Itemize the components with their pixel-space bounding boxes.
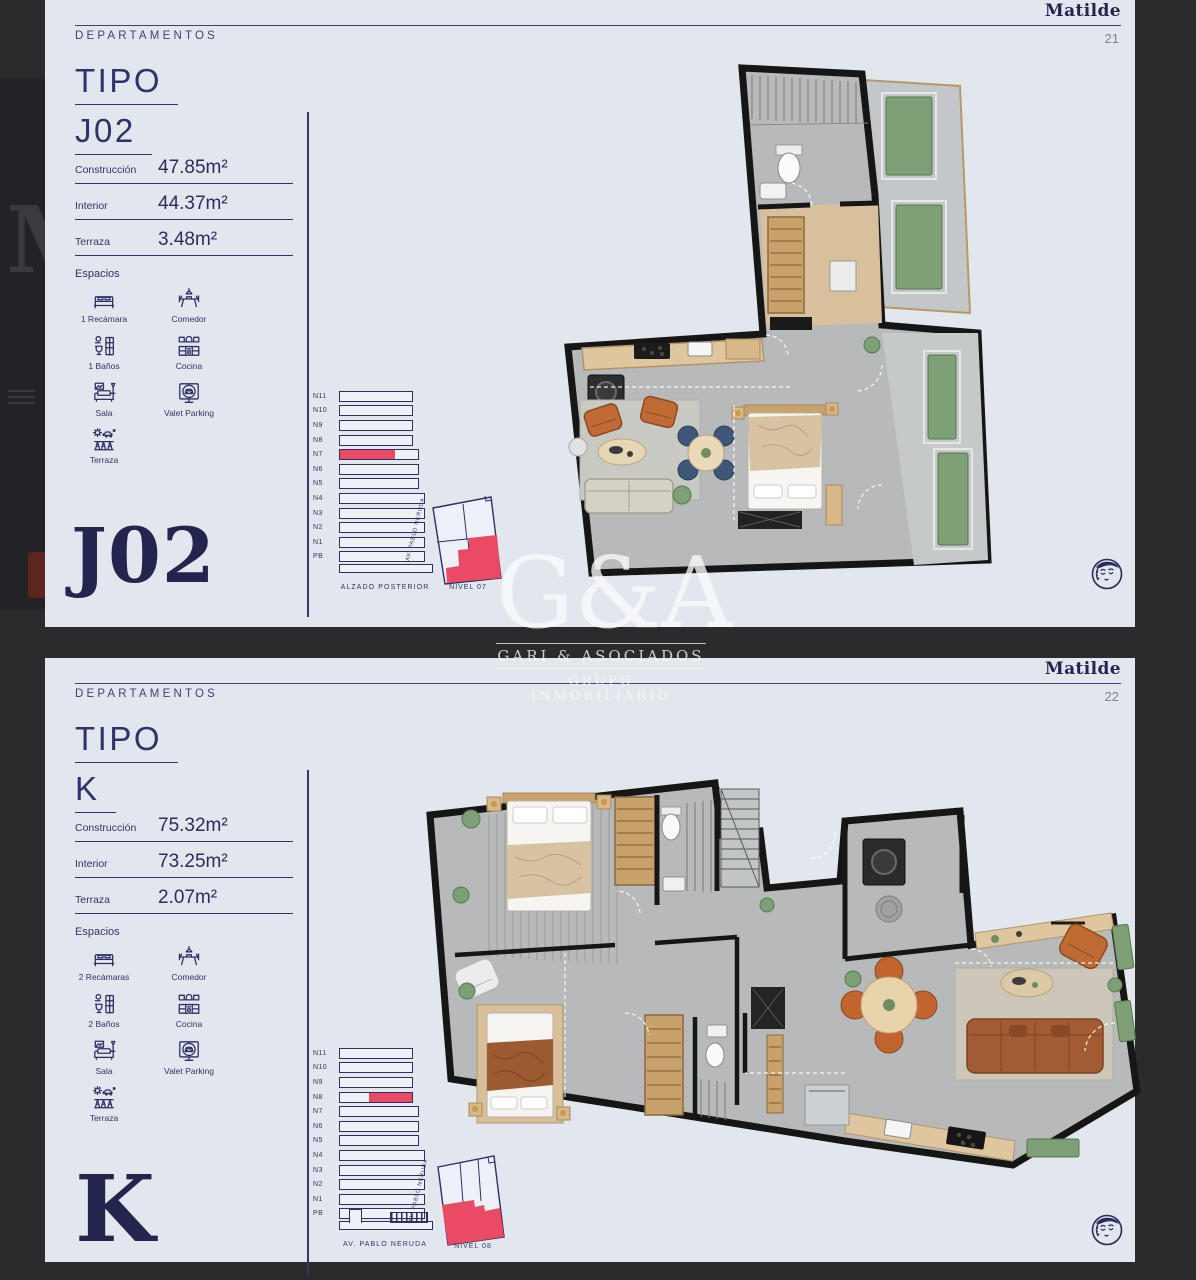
espacio-label: Comedor (137, 972, 241, 982)
floor-bar (339, 435, 413, 446)
metric-label: Terraza (75, 236, 110, 248)
brand-wordmark: Matilde (1045, 1, 1121, 21)
metric-row: Construcción 47.85m² (75, 148, 293, 184)
brochure-page-22: Matilde 22 DEPARTAMENTOS TIPO K Construc… (45, 658, 1135, 1262)
bed-icon (91, 286, 117, 312)
floor-bar (339, 1121, 419, 1132)
floor-label: N3 (313, 1167, 339, 1174)
floor-bar (339, 1106, 419, 1117)
section-label: DEPARTAMENTOS (75, 30, 218, 42)
elevation-row: PB (313, 550, 433, 565)
espacios-grid: 2 Recámaras Comedor 2 Baños Cocina Sala … (71, 944, 241, 1123)
espacio-bathroom: 1 Baños (71, 333, 137, 371)
developer-monogram: G&A (496, 548, 706, 641)
elevation-base (339, 564, 433, 573)
unit-type-line1: TIPO (75, 64, 178, 105)
floor-bar (339, 493, 425, 504)
elevation-row: N10 (313, 404, 433, 419)
floor-label: N8 (313, 1094, 339, 1101)
elevation-row: N11 (313, 389, 433, 404)
bath-icon (91, 991, 117, 1017)
metric-value: 73.25m² (158, 851, 228, 873)
elevation-row: N5 (313, 477, 433, 492)
matilde-face-logo (1089, 556, 1125, 597)
face-logo-graphic (1089, 1212, 1125, 1248)
elevation-base (339, 1221, 433, 1230)
espacio-label: Valet Parking (137, 1066, 241, 1076)
espacio-valet: Valet Parking (137, 380, 241, 418)
metric-row: Terraza 2.07m² (75, 878, 293, 914)
pdf-viewer: { "brand": { "name": "Matilde", "monogra… (0, 0, 1196, 1280)
espacio-terrace: Terraza (71, 1085, 137, 1123)
sofa-icon (91, 380, 117, 406)
espacio-label: Cocina (137, 1019, 241, 1029)
floor-label: N6 (313, 1123, 339, 1130)
espacio-label: 1 Baños (71, 361, 137, 371)
developer-firm-name: GARI & ASOCIADOS (496, 643, 706, 669)
floor-label: N1 (313, 1196, 339, 1203)
highlight-fill (340, 450, 395, 459)
espacio-label: Sala (71, 408, 137, 418)
floor-label: N11 (313, 1050, 339, 1057)
floor-bar (339, 478, 419, 489)
bath-icon (91, 333, 117, 359)
floor-label: PB (313, 553, 339, 560)
espacio-label: Cocina (137, 361, 241, 371)
metric-label: Construcción (75, 164, 136, 176)
floor-label: N3 (313, 510, 339, 517)
background-page-edge: M (0, 78, 45, 610)
sofa-icon (91, 1038, 117, 1064)
floor-bar (339, 391, 413, 402)
floor-label: N4 (313, 1152, 339, 1159)
espacio-living: Sala (71, 1038, 137, 1076)
terrace-icon (91, 1085, 117, 1111)
espacio-valet: Valet Parking (137, 1038, 241, 1076)
dining-icon (176, 286, 202, 312)
espacio-living: Sala (71, 380, 137, 418)
elevation-row: N8 (313, 433, 433, 448)
brochure-page-21: Matilde 21 DEPARTAMENTOS TIPO J02 Constr… (45, 0, 1135, 627)
floor-bar (339, 1077, 413, 1088)
floor-label: N2 (313, 524, 339, 531)
espacio-bedroom: 1 Recámara (71, 286, 137, 324)
espacios-title: Espacios (75, 926, 120, 938)
espacio-label: Sala (71, 1066, 137, 1076)
developer-tagline: GRUPO INMOBILIARIO (496, 674, 706, 704)
unit-type-line1: TIPO (75, 722, 178, 763)
highlight-fill (369, 1093, 412, 1102)
floor-label: N5 (313, 480, 339, 487)
floor-bar (339, 1048, 413, 1059)
metric-label: Interior (75, 200, 108, 212)
column-divider (307, 112, 309, 617)
metric-row: Interior 44.37m² (75, 184, 293, 220)
matilde-face-logo (1089, 1212, 1125, 1253)
floor-bar (339, 405, 413, 416)
valet-parking-icon (176, 380, 202, 406)
background-text-line (8, 390, 35, 392)
espacio-bedroom: 2 Recámaras (71, 944, 137, 982)
floor-label: N2 (313, 1181, 339, 1188)
floor-label: N9 (313, 422, 339, 429)
floor-bar (339, 508, 425, 519)
floor-label: N4 (313, 495, 339, 502)
metric-value: 3.48m² (158, 229, 217, 251)
floor-label: N11 (313, 393, 339, 400)
page-number: 21 (1105, 31, 1119, 46)
metric-row: Terraza 3.48m² (75, 220, 293, 256)
floor-bar (339, 1165, 425, 1176)
terrace-icon (91, 427, 117, 453)
developer-watermark: G&A GARI & ASOCIADOS GRUPO INMOBILIARIO (496, 548, 706, 704)
brand-wordmark: Matilde (1045, 659, 1121, 679)
unit-big-label: K (75, 1163, 155, 1255)
unit-big-label: J02 (71, 518, 216, 594)
elevation-row-highlighted: N7 (313, 447, 433, 462)
background-text-line (8, 402, 35, 404)
page-number: 22 (1105, 689, 1119, 704)
metric-label: Interior (75, 858, 108, 870)
floor-label: N8 (313, 437, 339, 444)
floor-plan-j02-graphic (530, 55, 1000, 595)
floor-label: N1 (313, 539, 339, 546)
floor-bar (339, 420, 413, 431)
unit-type-title: TIPO K (75, 722, 178, 813)
metric-label: Construcción (75, 822, 136, 834)
floor-bar (339, 464, 419, 475)
kitchen-icon (176, 333, 202, 359)
espacio-label: 2 Recámaras (71, 972, 137, 982)
espacio-label: Valet Parking (137, 408, 241, 418)
metric-value: 47.85m² (158, 157, 228, 179)
espacio-label: Comedor (137, 314, 241, 324)
floor-label: N10 (313, 1064, 339, 1071)
face-logo-graphic (1089, 556, 1125, 592)
metrics-table: Construcción 47.85m² Interior 44.37m² Te… (75, 148, 293, 256)
espacio-dining: Comedor (137, 286, 241, 324)
background-page-letter: M (6, 186, 45, 294)
floor-label: N9 (313, 1079, 339, 1086)
ground-floor-door (349, 1209, 362, 1223)
bed-icon (91, 944, 117, 970)
header-rule (75, 25, 1121, 26)
metric-row: Construcción 75.32m² (75, 806, 293, 842)
valet-parking-icon (176, 1038, 202, 1064)
floor-plan-j02 (530, 55, 1000, 600)
elevation-row: N6 (313, 462, 433, 477)
elevation-caption: AV. PABLO NERUDA (325, 1241, 445, 1248)
espacio-label: Terraza (71, 455, 137, 465)
espacio-label: 2 Baños (71, 1019, 137, 1029)
floor-plan-k-graphic (415, 773, 1145, 1173)
metric-value: 2.07m² (158, 887, 217, 909)
section-label: DEPARTAMENTOS (75, 688, 218, 700)
column-divider (307, 770, 309, 1275)
metrics-table: Construcción 75.32m² Interior 73.25m² Te… (75, 806, 293, 914)
metric-value: 44.37m² (158, 193, 228, 215)
espacio-terrace: Terraza (71, 427, 137, 465)
site-plan-caption: NIVEL 08 (430, 1243, 516, 1250)
floor-label: N6 (313, 466, 339, 473)
floor-bar (339, 1179, 425, 1190)
floor-label: N7 (313, 451, 339, 458)
unit-type-title: TIPO J02 (75, 64, 178, 155)
floor-label: PB (313, 1210, 339, 1217)
floor-label: N10 (313, 407, 339, 414)
floor-plan-k (415, 773, 1145, 1178)
espacio-kitchen: Cocina (137, 991, 241, 1029)
espacios-grid: 1 Recámara Comedor 1 Baños Cocina Sala V… (71, 286, 241, 465)
espacios-title: Espacios (75, 268, 120, 280)
floor-label: N7 (313, 1108, 339, 1115)
floor-label: N5 (313, 1137, 339, 1144)
espacio-bathroom: 2 Baños (71, 991, 137, 1029)
floor-bar-highlighted (339, 449, 419, 460)
floor-bar (339, 1062, 413, 1073)
background-text-line (8, 396, 35, 398)
metric-row: Interior 73.25m² (75, 842, 293, 878)
kitchen-icon (176, 991, 202, 1017)
floor-bar (339, 1135, 419, 1146)
floor-bar-highlighted (339, 1092, 413, 1103)
espacio-label: Terraza (71, 1113, 137, 1123)
metric-value: 75.32m² (158, 815, 228, 837)
elevation-row: N4 (313, 491, 433, 506)
elevation-row: N9 (313, 418, 433, 433)
dining-icon (176, 944, 202, 970)
building-elevation: N11 N10 N9 N8 N7 N6 N5 N4 N3 N2 N1 PB (313, 389, 433, 573)
espacio-dining: Comedor (137, 944, 241, 982)
floor-bar (339, 1150, 425, 1161)
metric-label: Terraza (75, 894, 110, 906)
espacio-label: 1 Recámara (71, 314, 137, 324)
espacio-kitchen: Cocina (137, 333, 241, 371)
